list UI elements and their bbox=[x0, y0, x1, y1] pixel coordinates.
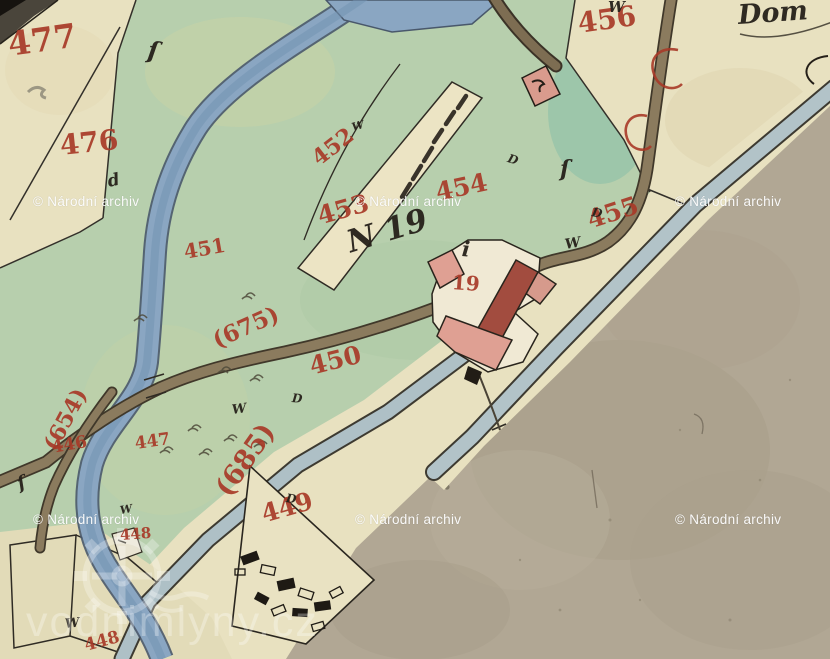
map-canvas: 477476456452453454455451450(675)(685)(65… bbox=[0, 0, 830, 659]
map-artwork bbox=[0, 0, 830, 659]
